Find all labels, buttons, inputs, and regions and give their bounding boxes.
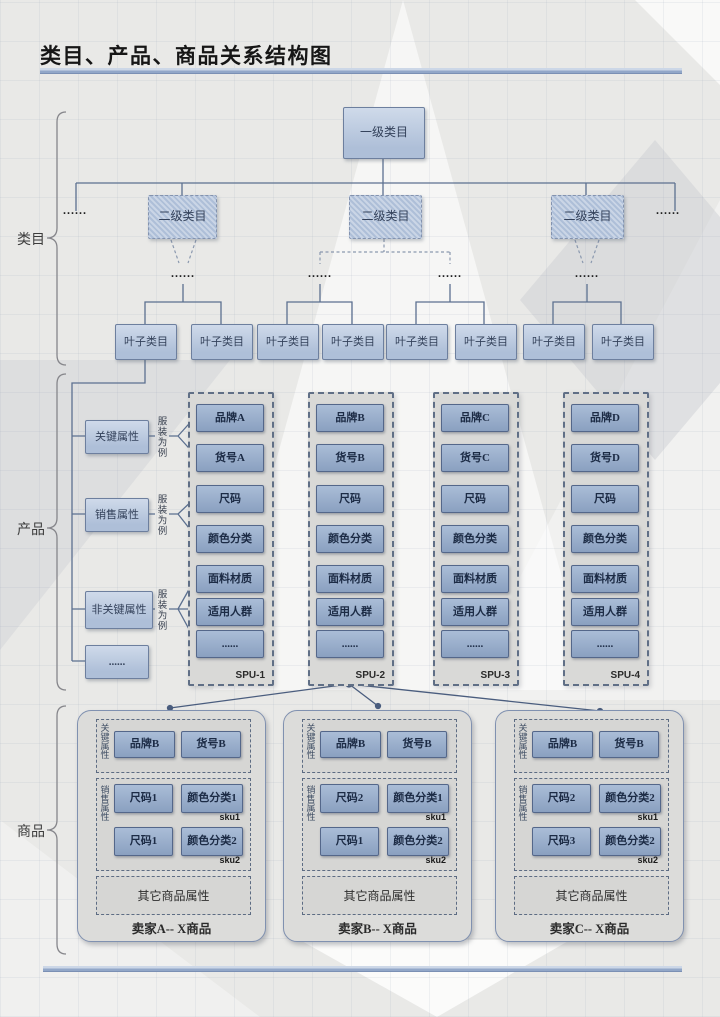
spu-name: SPU-2	[356, 670, 385, 681]
other-attr-section: 其它商品属性	[96, 876, 251, 915]
second-category-box: 二级类目	[551, 195, 624, 239]
example-note: 服装为例	[155, 487, 165, 543]
sku-size-box: 尺码1	[114, 827, 173, 856]
sales-attr-label: 销售属性	[517, 785, 526, 821]
spu-item: 适用人群	[196, 598, 264, 626]
spu-item: 颜色分类	[441, 525, 509, 553]
seller-card-title: 卖家B-- X商品	[284, 918, 471, 937]
leaf-category-box: 叶子类目	[386, 324, 448, 360]
spu-item: 品牌C	[441, 404, 509, 432]
junction-dot	[376, 704, 381, 709]
leaf-category-box: 叶子类目	[455, 324, 517, 360]
spu-panel-1: 品牌A 货号A 尺码 颜色分类 面料材质 适用人群 ...... SPU-1	[188, 392, 274, 686]
second-category-box: 二级类目	[148, 195, 217, 239]
page-title: 类目、产品、商品关系结构图	[40, 40, 460, 70]
sku-color-box: 颜色分类1	[387, 784, 449, 813]
ellipsis-branch: ......	[567, 266, 607, 281]
leaf-category-box: 叶子类目	[115, 324, 177, 360]
spu-item: 适用人群	[316, 598, 384, 626]
spu-name: SPU-1	[236, 670, 265, 681]
itemno-box: 货号B	[387, 731, 447, 758]
example-note: 服装为例	[155, 582, 165, 638]
sku-tag: sku1	[606, 812, 658, 822]
spu-item: ......	[316, 630, 384, 658]
itemno-box: 货号B	[181, 731, 241, 758]
other-attr-section: 其它商品属性	[302, 876, 457, 915]
brand-box: 品牌B	[114, 731, 175, 758]
spu-panel-2: 品牌B 货号B 尺码 颜色分类 面料材质 适用人群 ...... SPU-2	[308, 392, 394, 686]
seller-card-b: 关键属性 品牌B 货号B 销售属性 尺码2 颜色分类1 sku1 尺码1 颜色分…	[283, 710, 472, 942]
seller-card-title: 卖家A-- X商品	[78, 918, 265, 937]
spu-item: 品牌A	[196, 404, 264, 432]
sku-color-box: 颜色分类2	[599, 784, 661, 813]
diagram-canvas: 类目、产品、商品关系结构图 类目 产品 商品 一级类目 ...... .....…	[0, 0, 720, 1017]
sku-size-box: 尺码1	[114, 784, 173, 813]
ellipsis-right: ......	[648, 203, 688, 218]
seller-card-title: 卖家C-- X商品	[496, 918, 683, 937]
spu-item: 颜色分类	[571, 525, 639, 553]
spu-item: 颜色分类	[196, 525, 264, 553]
attr-box-ellipsis: ......	[85, 645, 149, 679]
brand-box: 品牌B	[532, 731, 593, 758]
spu-panel-4: 品牌D 货号D 尺码 颜色分类 面料材质 适用人群 ...... SPU-4	[563, 392, 649, 686]
category-brace	[47, 112, 66, 365]
product-brace	[47, 374, 66, 690]
spu-item: 尺码	[196, 485, 264, 513]
attr-box-key: 关键属性	[85, 420, 149, 454]
sales-attr-label: 销售属性	[99, 785, 108, 821]
leaf-category-box: 叶子类目	[191, 324, 253, 360]
spu-item: 颜色分类	[316, 525, 384, 553]
ellipsis-branch: ......	[300, 266, 340, 281]
spu-item: 适用人群	[571, 598, 639, 626]
spu-name: SPU-4	[611, 670, 640, 681]
sku-color-box: 颜色分类2	[599, 827, 661, 856]
leaf-category-box: 叶子类目	[592, 324, 654, 360]
attr-box-sales: 销售属性	[85, 498, 149, 532]
spu-item: 面料材质	[316, 565, 384, 593]
spu-item: 货号A	[196, 444, 264, 472]
seller-card-c: 关键属性 品牌B 货号B 销售属性 尺码2 颜色分类2 sku1 尺码3 颜色分…	[495, 710, 684, 942]
spu-item: 面料材质	[571, 565, 639, 593]
leaf-category-box: 叶子类目	[523, 324, 585, 360]
sku-color-box: 颜色分类2	[181, 827, 243, 856]
sku-color-box: 颜色分类2	[387, 827, 449, 856]
attr-box-nonkey: 非关键属性	[85, 591, 153, 629]
example-note: 服装为例	[155, 409, 165, 465]
spu-name: SPU-3	[481, 670, 510, 681]
spu-panel-3: 品牌C 货号C 尺码 颜色分类 面料材质 适用人群 ...... SPU-3	[433, 392, 519, 686]
sku-size-box: 尺码2	[320, 784, 379, 813]
category-tree-lines	[76, 157, 675, 324]
hidden-level-dashed-lines	[171, 239, 599, 264]
key-attr-label: 关键属性	[305, 723, 314, 759]
spu-item: 品牌D	[571, 404, 639, 432]
sku-tag: sku2	[606, 855, 658, 865]
title-rule	[40, 68, 682, 74]
spu-item: ......	[571, 630, 639, 658]
ellipsis-branch: ......	[163, 266, 203, 281]
other-attr-section: 其它商品属性	[514, 876, 669, 915]
ellipsis-branch: ......	[430, 266, 470, 281]
sku-tag: sku1	[188, 812, 240, 822]
spu-item: 面料材质	[441, 565, 509, 593]
footer-rule	[43, 966, 682, 972]
sku-size-box: 尺码1	[320, 827, 379, 856]
sku-tag: sku2	[188, 855, 240, 865]
second-category-box: 二级类目	[349, 195, 422, 239]
section-label-goods: 商品	[14, 821, 48, 841]
spu-item: 面料材质	[196, 565, 264, 593]
sku-size-box: 尺码3	[532, 827, 591, 856]
sku-tag: sku2	[394, 855, 446, 865]
key-attr-label: 关键属性	[517, 723, 526, 759]
sku-size-box: 尺码2	[532, 784, 591, 813]
section-label-product: 产品	[14, 519, 48, 539]
leaf-category-box: 叶子类目	[257, 324, 319, 360]
spu-item: 品牌B	[316, 404, 384, 432]
sku-color-box: 颜色分类1	[181, 784, 243, 813]
leaf-category-box: 叶子类目	[322, 324, 384, 360]
ellipsis-left: ......	[55, 203, 95, 218]
section-label-category: 类目	[14, 229, 48, 249]
root-category-box: 一级类目	[343, 107, 425, 159]
seller-card-a: 关键属性 品牌B 货号B 销售属性 尺码1 颜色分类1 sku1 尺码1 颜色分…	[77, 710, 266, 942]
spu-item: ......	[441, 630, 509, 658]
spu-item: 货号D	[571, 444, 639, 472]
key-attr-label: 关键属性	[99, 723, 108, 759]
brand-box: 品牌B	[320, 731, 381, 758]
sku-tag: sku1	[394, 812, 446, 822]
goods-brace	[47, 706, 66, 954]
itemno-box: 货号B	[599, 731, 659, 758]
spu-item: 尺码	[571, 485, 639, 513]
spu-item: 货号C	[441, 444, 509, 472]
spu-item: ......	[196, 630, 264, 658]
spu-item: 尺码	[316, 485, 384, 513]
spu-item: 货号B	[316, 444, 384, 472]
spu-item: 尺码	[441, 485, 509, 513]
spu-item: 适用人群	[441, 598, 509, 626]
sales-attr-label: 销售属性	[305, 785, 314, 821]
